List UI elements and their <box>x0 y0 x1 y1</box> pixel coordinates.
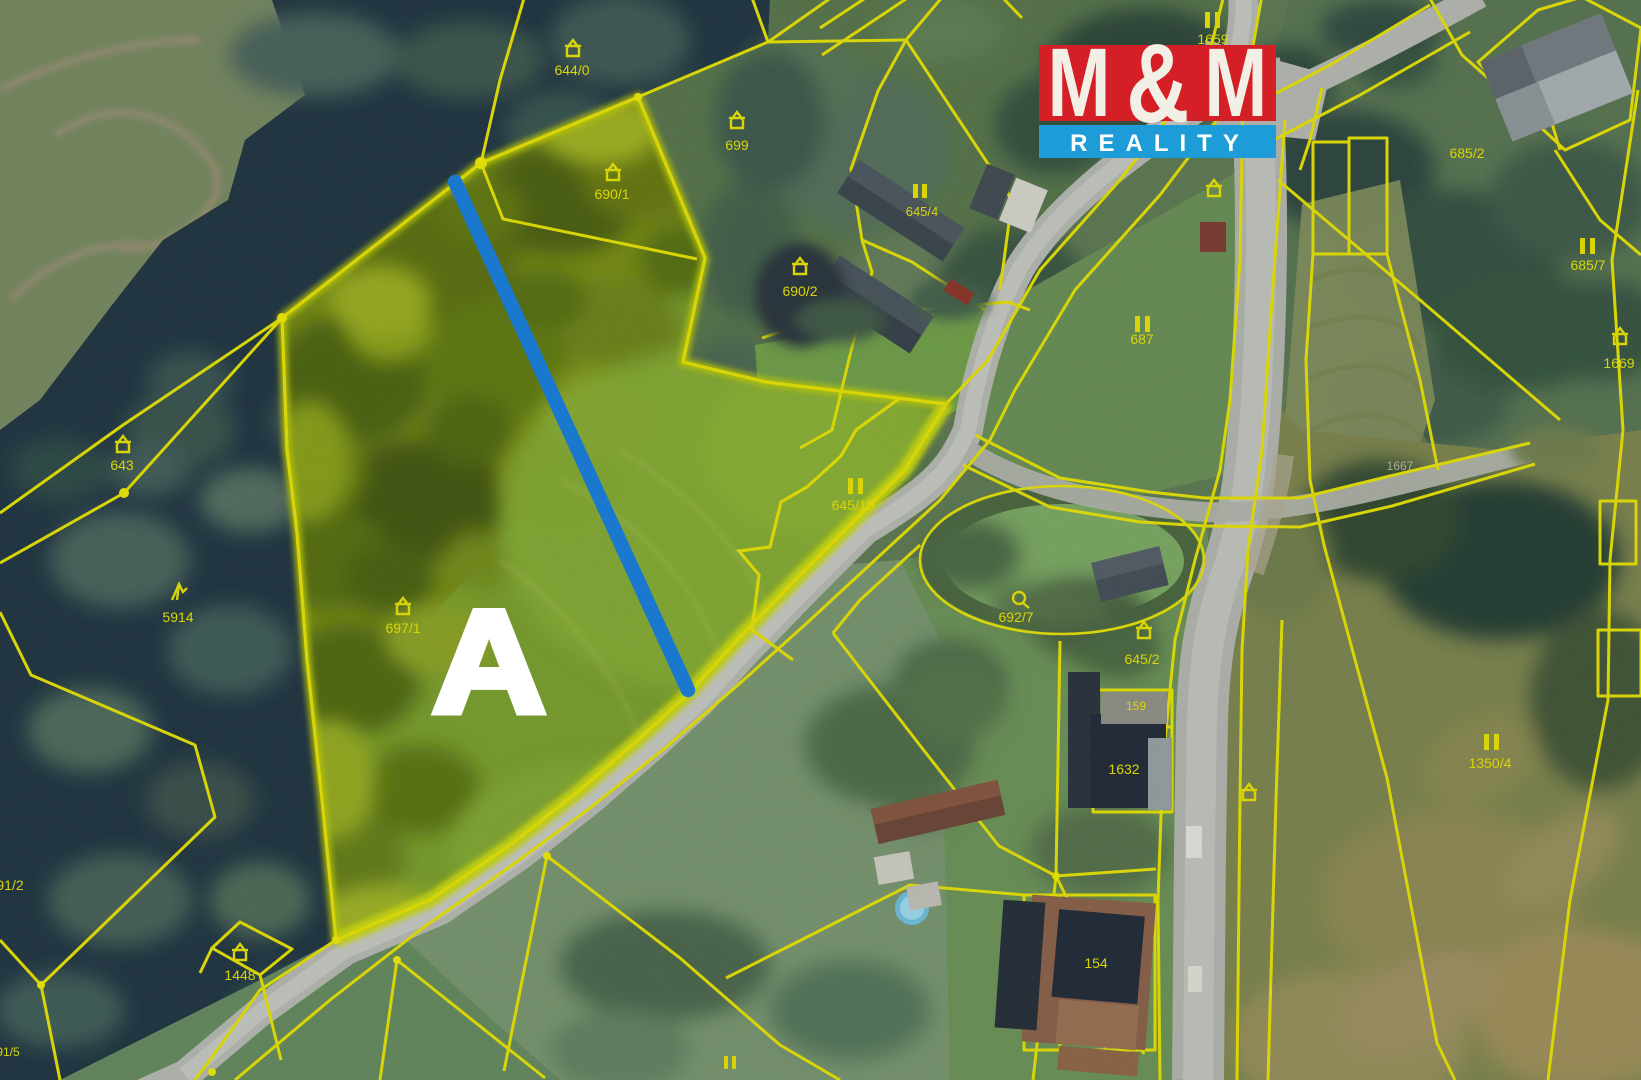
svg-text:A: A <box>432 580 546 743</box>
svg-text:REALITY: REALITY <box>1070 130 1250 157</box>
svg-text:M: M <box>1204 29 1267 137</box>
svg-text:M: M <box>1047 29 1110 137</box>
